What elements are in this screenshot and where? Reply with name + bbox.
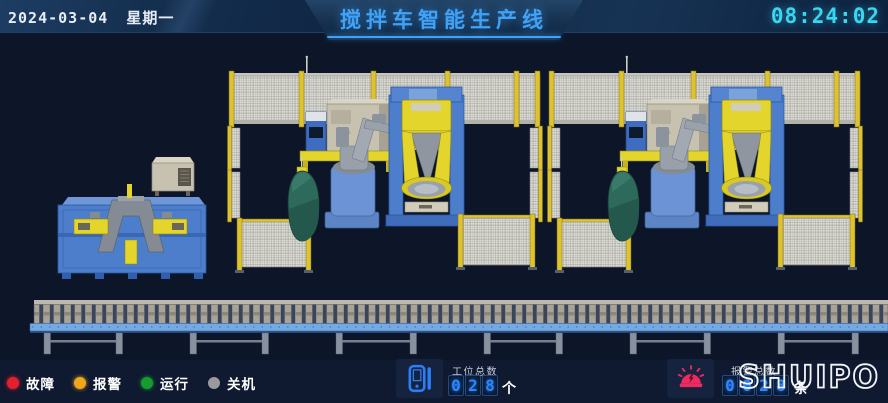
- digit-box: 8: [482, 375, 498, 396]
- dashboard: KUKA: [0, 0, 888, 403]
- device-icon: [407, 364, 433, 394]
- clock-display: 08:24:02: [771, 4, 880, 28]
- legend-label: 运行: [160, 373, 189, 393]
- fault-status-dot: [7, 377, 19, 389]
- digit-box: 2: [465, 375, 481, 396]
- header: 2024-03-04 星期一 搅拌车智能生产线 08:24:02: [0, 0, 888, 42]
- digit-box: 0: [722, 375, 738, 396]
- date-display: 2024-03-04 星期一: [8, 7, 174, 28]
- production-line-3d-view: KUKA: [0, 0, 888, 403]
- legend-label: 关机: [227, 373, 256, 393]
- legend-item-off: 关机: [208, 373, 256, 393]
- running-status-dot: [141, 377, 153, 389]
- stations-icon-panel: [396, 359, 443, 398]
- alarm-beacon-icon: [677, 365, 705, 393]
- title-underline: [327, 36, 561, 38]
- stations-counter-unit: 个: [502, 378, 516, 398]
- legend-label: 报警: [93, 373, 122, 393]
- legend-item-alarm: 报警: [74, 373, 122, 393]
- alarm-status-dot: [74, 377, 86, 389]
- weekday-value: 星期一: [126, 9, 174, 27]
- legend-label: 故障: [26, 373, 55, 393]
- date-value: 2024-03-04: [8, 9, 108, 27]
- page-title: 搅拌车智能生产线: [305, 4, 583, 34]
- digit-box: 0: [448, 375, 464, 396]
- legend-item-running: 运行: [141, 373, 189, 393]
- off-status-dot: [208, 377, 220, 389]
- shuipo-logo: SHUIPO: [738, 359, 880, 395]
- stations-counter-digits: 0 2 8: [448, 375, 498, 396]
- alarms-icon-panel: [667, 359, 714, 398]
- status-legend: 故障 报警 运行 关机: [7, 373, 275, 393]
- legend-item-fault: 故障: [7, 373, 55, 393]
